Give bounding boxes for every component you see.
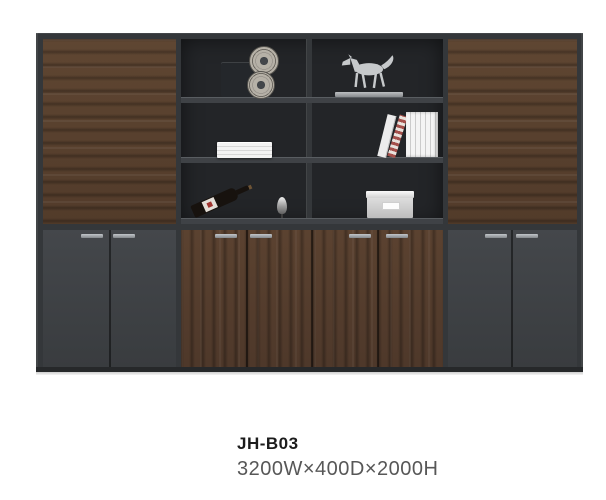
door-seam bbox=[311, 230, 313, 367]
door-seam bbox=[246, 230, 248, 367]
door-handle bbox=[516, 234, 538, 238]
wine-bottle-label bbox=[202, 197, 218, 212]
door-handle bbox=[215, 234, 237, 238]
product-card: JH-B03 3200W×400D×2000H bbox=[0, 0, 606, 500]
floor-shadow bbox=[36, 372, 583, 375]
cabinet-top-section bbox=[43, 39, 577, 224]
upright-books-decor bbox=[406, 112, 438, 157]
storage-box-decor bbox=[367, 191, 413, 218]
door-handle bbox=[386, 234, 408, 238]
shelf-center-divider bbox=[306, 39, 312, 224]
cabinet-photo bbox=[36, 33, 583, 372]
door-handle bbox=[349, 234, 371, 238]
wood-door-top-left bbox=[43, 39, 176, 224]
door-seam bbox=[511, 230, 513, 367]
door-handle bbox=[81, 234, 103, 238]
door-seam bbox=[377, 230, 379, 367]
door-handle bbox=[485, 234, 507, 238]
film-reel-icon bbox=[247, 71, 275, 99]
cabinet-bottom-section bbox=[43, 230, 577, 367]
silver-stopper-decor bbox=[277, 197, 287, 214]
horse-statue-icon bbox=[339, 53, 399, 93]
shelf-board bbox=[181, 97, 443, 103]
wood-doors-middle bbox=[181, 230, 443, 367]
film-projector-decor bbox=[221, 46, 283, 97]
door-handle bbox=[250, 234, 272, 238]
wine-bottle-body bbox=[190, 187, 239, 218]
wine-bottle-decor bbox=[192, 178, 254, 218]
product-caption: JH-B03 3200W×400D×2000H bbox=[237, 434, 438, 481]
open-shelves bbox=[181, 39, 443, 224]
gray-doors-right bbox=[448, 230, 577, 367]
flat-book-stack-decor bbox=[217, 142, 272, 158]
gray-doors-left bbox=[43, 230, 176, 367]
shelf-board bbox=[181, 218, 443, 224]
door-seam bbox=[109, 230, 111, 367]
door-handle bbox=[113, 234, 135, 238]
product-model: JH-B03 bbox=[237, 434, 438, 454]
product-dimensions: 3200W×400D×2000H bbox=[237, 458, 438, 481]
wood-door-top-right bbox=[448, 39, 577, 224]
